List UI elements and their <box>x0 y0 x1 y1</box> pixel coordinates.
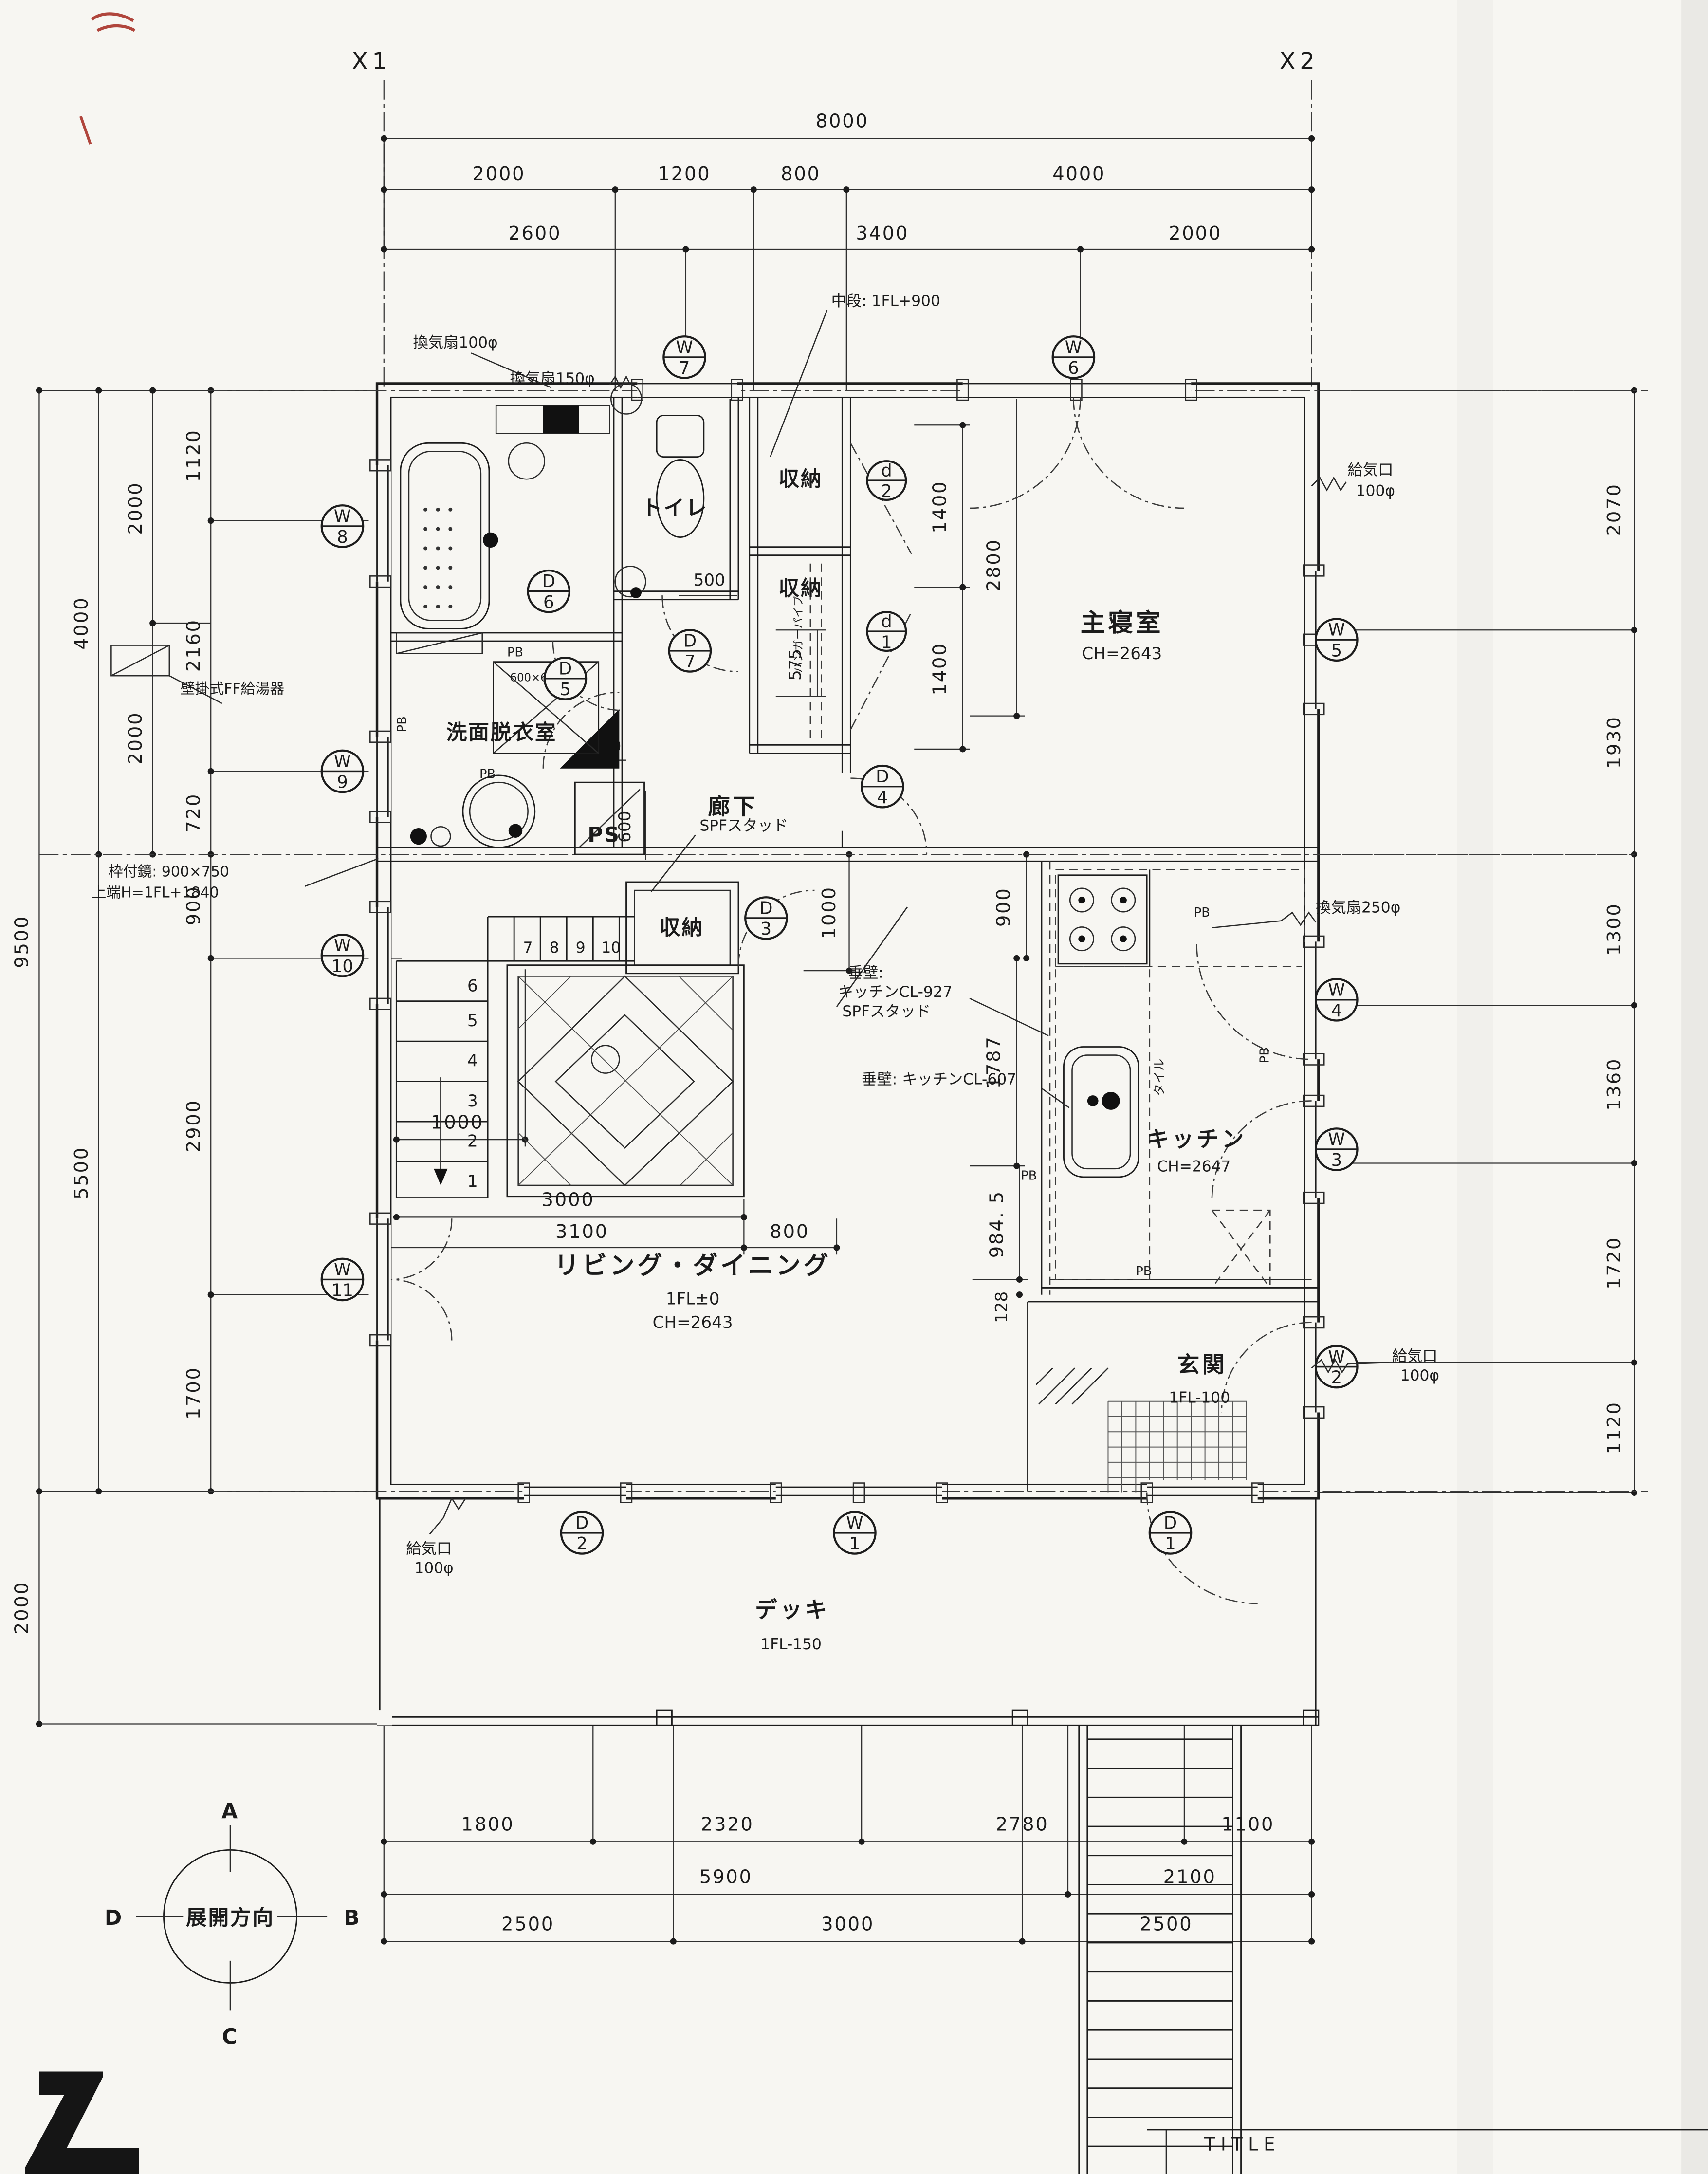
note-supply-air-2a: 給気口 <box>1392 1347 1438 1365</box>
note-mirror-height: 上端H=1FL+1840 <box>92 884 219 901</box>
bathtub-texture <box>423 508 452 608</box>
marker-w5: W5 <box>1316 619 1357 661</box>
svg-text:W: W <box>1328 1347 1345 1367</box>
svg-text:6: 6 <box>543 592 554 612</box>
svg-text:1: 1 <box>849 1534 861 1554</box>
window-w10-symbol <box>368 902 391 1010</box>
note-supply-air-1a: 給気口 <box>1348 461 1394 479</box>
svg-text:5: 5 <box>560 680 571 700</box>
compass-b: B <box>344 1906 361 1930</box>
dim-1400b: 1400 <box>929 642 951 695</box>
svg-text:D: D <box>559 659 572 679</box>
note-pb-5: PB <box>1257 1047 1272 1063</box>
svg-text:3: 3 <box>1331 1150 1342 1170</box>
stair-num-2: 2 <box>467 1131 478 1151</box>
entry-step-mark <box>1212 1210 1270 1288</box>
svg-text:W: W <box>676 337 693 357</box>
dim-2000b: 2000 <box>1169 222 1222 244</box>
dim-4000l: 4000 <box>71 597 92 650</box>
marker-w3: W3 <box>1316 1128 1357 1170</box>
room-closet-3: 収納 <box>660 916 704 940</box>
svg-text:W: W <box>846 1513 863 1533</box>
svg-text:2: 2 <box>881 481 892 501</box>
marker-d4: D4 <box>862 766 903 808</box>
dim-2160: 2160 <box>183 619 204 672</box>
bath-drain <box>509 443 545 479</box>
grid-label-x2: X2 <box>1280 48 1319 75</box>
note-pb-6: PB <box>1021 1169 1037 1183</box>
stair-num-4: 4 <box>467 1051 478 1070</box>
title-block: TITLE <box>1147 2130 1708 2174</box>
dim-1120r: 1120 <box>1603 1401 1625 1454</box>
dim-1930: 1930 <box>1603 716 1625 769</box>
note-vent250: 換気扇250φ <box>1316 899 1400 917</box>
window-w8-symbol <box>368 460 391 587</box>
window-w9-symbol <box>368 731 391 823</box>
svg-text:W: W <box>1328 980 1345 1000</box>
marker-w7: W7 <box>663 336 705 378</box>
marker-d6: D6 <box>528 571 569 612</box>
note-supply-air-2b: 100φ <box>1400 1367 1439 1384</box>
grid-label-x1: X1 <box>352 48 391 75</box>
note-midshelf: 中段: 1FL+900 <box>831 293 940 310</box>
dim-1000h: 1000 <box>818 886 840 939</box>
svg-text:W: W <box>1328 1129 1345 1149</box>
dim-3100: 3100 <box>555 1221 608 1243</box>
staircase: 6 5 4 3 2 1 7 8 9 10 <box>396 917 634 1198</box>
svg-text:W: W <box>334 752 351 772</box>
dim-4000t: 4000 <box>1052 163 1105 185</box>
room-living-fl: 1FL±0 <box>666 1290 720 1309</box>
note-pb-4: PB <box>1194 905 1210 920</box>
dim-2800: 2800 <box>983 538 1005 591</box>
dim-3000a: 3000 <box>542 1189 595 1211</box>
dim-2000a: 2000 <box>472 163 525 185</box>
dim-2600: 2600 <box>508 222 561 244</box>
svg-text:9: 9 <box>337 773 348 792</box>
marker-w2: W2 <box>1316 1346 1357 1388</box>
floor-plan-drawing: X1 X2 8000 2000 1200 800 4000 2600 3400 … <box>0 0 1708 2174</box>
svg-text:W: W <box>334 506 351 526</box>
bathroom <box>401 405 619 768</box>
note-heater: 壁掛式FF給湯器 <box>181 681 285 698</box>
svg-text:2: 2 <box>576 1534 588 1554</box>
svg-text:d: d <box>881 612 892 632</box>
dimension-framework: X1 X2 8000 2000 1200 800 4000 2600 3400 … <box>11 48 1637 1944</box>
room-closet-1: 収納 <box>778 467 823 491</box>
bath-faucet <box>483 533 498 548</box>
dim-2000c: 2000 <box>125 481 147 534</box>
svg-text:d: d <box>881 461 892 481</box>
dim-984-5: 984. 5 <box>986 1190 1008 1258</box>
dim-1000s: 1000 <box>431 1111 484 1133</box>
note-tarekabe-607: 垂壁: キッチンCL-607 <box>862 1070 1016 1088</box>
vent-fan-symbol <box>611 384 642 414</box>
dim-1300: 1300 <box>1603 903 1625 956</box>
stair-num-10: 10 <box>601 939 621 957</box>
walls <box>39 384 1648 1498</box>
dim-3000b: 3000 <box>821 1913 874 1935</box>
note-spf-stud-2: SPFスタッド <box>842 1003 931 1020</box>
dim-800: 800 <box>781 163 821 185</box>
note-pb-2: PB <box>395 716 409 732</box>
room-toilet: トイレ <box>642 496 708 520</box>
dim-900k: 900 <box>993 887 1015 927</box>
direction-compass: A B C D 展開方向 <box>105 1799 361 2049</box>
svg-text:3: 3 <box>761 919 772 939</box>
hearth <box>507 965 744 1197</box>
room-entry: 玄関 <box>1177 1352 1227 1378</box>
corner-mark <box>25 2072 139 2174</box>
svg-text:4: 4 <box>877 788 888 808</box>
dim-1120: 1120 <box>183 429 204 482</box>
room-living: リビング・ダイニング <box>554 1251 831 1280</box>
window-w11-symbol <box>368 1213 391 1346</box>
svg-text:D: D <box>575 1513 588 1533</box>
room-deck-fl: 1FL-150 <box>760 1636 822 1653</box>
door-d1-symbol <box>1141 1480 1263 1503</box>
svg-text:1: 1 <box>1165 1534 1176 1554</box>
note-pb-1: PB <box>507 645 523 660</box>
marker-d2-small: d2 <box>867 461 906 502</box>
window-w1-symbol <box>770 1480 947 1503</box>
dim-1100: 1100 <box>1221 1814 1274 1836</box>
floor-plan-page: X1 X2 8000 2000 1200 800 4000 2600 3400 … <box>0 0 1708 2174</box>
svg-text:D: D <box>876 767 889 787</box>
dim-1800: 1800 <box>461 1814 514 1836</box>
compass-d: D <box>105 1906 123 1930</box>
stair-num-3: 3 <box>467 1091 478 1111</box>
compass-label: 展開方向 <box>186 1906 275 1930</box>
dim-1700: 1700 <box>183 1366 204 1419</box>
note-pb-3: PB <box>479 767 496 782</box>
svg-text:D: D <box>1164 1513 1177 1533</box>
marker-d5: D5 <box>545 658 586 700</box>
entrance <box>1036 1210 1270 1492</box>
svg-text:10: 10 <box>331 957 353 976</box>
bathtub <box>401 443 489 628</box>
room-master-ch: CH=2643 <box>1082 644 1162 663</box>
marker-d1-small: d1 <box>867 612 906 653</box>
note-mirror-size: 枠付鏡: 900×750 <box>109 864 229 881</box>
window-w7-symbol <box>632 377 743 400</box>
svg-text:8: 8 <box>337 527 348 547</box>
dim-2070: 2070 <box>1603 483 1625 536</box>
svg-text:5: 5 <box>1331 641 1342 661</box>
stair-num-8: 8 <box>550 939 559 957</box>
dimension-ticks <box>36 135 1637 1945</box>
svg-text:D: D <box>683 631 697 651</box>
kitchen-sink <box>1064 1047 1139 1177</box>
note-tarekabe-927-a: 垂壁: <box>848 964 883 981</box>
note-spf-stud-1: SPFスタッド <box>699 817 788 835</box>
dim-2500a: 2500 <box>501 1913 554 1935</box>
room-living-ch: CH=2643 <box>653 1313 733 1332</box>
svg-text:4: 4 <box>1331 1001 1342 1021</box>
scan-mark <box>81 116 91 144</box>
svg-text:D: D <box>759 898 772 918</box>
dim-1360: 1360 <box>1603 1058 1625 1111</box>
window-w6-symbol <box>957 377 1196 400</box>
dim-2320: 2320 <box>701 1814 754 1836</box>
marker-d2: D2 <box>561 1512 603 1554</box>
svg-text:W: W <box>1328 620 1345 640</box>
dim-1200: 1200 <box>658 163 711 185</box>
dim-2000-deck: 2000 <box>11 1581 33 1634</box>
note-vent150: 換気扇150φ <box>510 370 595 387</box>
room-wash: 洗面脱衣室 <box>446 720 557 745</box>
entry-hatch <box>1036 1368 1108 1404</box>
door-d2-symbol <box>518 1480 632 1503</box>
marker-w11: W11 <box>322 1259 363 1301</box>
dim-5500: 5500 <box>71 1146 92 1199</box>
svg-text:W: W <box>334 936 351 956</box>
scan-mark <box>92 14 135 30</box>
stair-num-5: 5 <box>467 1011 478 1031</box>
washing-machine <box>463 775 535 847</box>
svg-text:1: 1 <box>881 632 892 652</box>
bath-step <box>560 709 619 768</box>
svg-text:W: W <box>1065 337 1082 357</box>
dim-3400: 3400 <box>856 222 909 244</box>
marker-d1: D1 <box>1150 1512 1191 1554</box>
external-stair <box>1079 1725 1241 2174</box>
room-entry-fl: 1FL-100 <box>1169 1389 1230 1407</box>
note-tarekabe-927-b: キッチンCL-927 <box>838 983 953 1001</box>
room-ps: PS <box>588 823 621 847</box>
compass-a: A <box>221 1799 239 1824</box>
dim-800b: 800 <box>770 1221 809 1243</box>
dim-2900: 2900 <box>183 1099 204 1152</box>
dim-9500: 9500 <box>11 915 33 968</box>
dim-720: 720 <box>183 793 204 833</box>
svg-text:6: 6 <box>1068 358 1079 378</box>
svg-text:W: W <box>334 1260 351 1280</box>
note-hanger-pipe: ハンガーパイプ <box>792 595 805 673</box>
dim-500: 500 <box>694 571 725 590</box>
toilet-tank <box>657 415 704 457</box>
kitchen-fixtures <box>1055 869 1304 1279</box>
stair-num-7: 7 <box>523 939 533 957</box>
note-tile: タイル <box>1152 1059 1167 1096</box>
svg-text:7: 7 <box>679 358 690 378</box>
room-master: 主寝室 <box>1081 608 1164 638</box>
note-pb-7: PB <box>1136 1264 1152 1279</box>
dim-128: 128 <box>992 1291 1011 1323</box>
dim-5900: 5900 <box>699 1866 753 1888</box>
compass-c: C <box>222 2025 239 2049</box>
dim-8000: 8000 <box>816 111 869 132</box>
dim-1720: 1720 <box>1603 1236 1625 1290</box>
note-vent100: 換気扇100φ <box>413 334 497 351</box>
room-kitchen-ch: CH=2647 <box>1157 1158 1230 1176</box>
svg-text:2: 2 <box>1331 1368 1342 1388</box>
stair-num-9: 9 <box>576 939 586 957</box>
stair-num-6: 6 <box>467 976 478 996</box>
note-supply-air-1b: 100φ <box>1356 482 1395 499</box>
room-deck: デッキ <box>755 1597 830 1622</box>
room-kitchen: キッチン <box>1147 1126 1247 1152</box>
openings <box>368 377 1324 1503</box>
marker-w4: W4 <box>1316 979 1357 1021</box>
marker-w9: W9 <box>322 751 363 792</box>
entry-tile-grid <box>1108 1401 1246 1493</box>
stair-arrow <box>434 1169 447 1185</box>
room-hall: 廊下 <box>708 794 757 820</box>
marker-d3: D3 <box>745 897 787 939</box>
dim-2500b: 2500 <box>1139 1913 1193 1935</box>
stair-num-1: 1 <box>467 1172 478 1191</box>
svg-text:11: 11 <box>331 1281 353 1301</box>
marker-w6: W6 <box>1053 336 1094 378</box>
marker-w1: W1 <box>834 1512 875 1554</box>
stove <box>1058 875 1147 964</box>
marker-w10: W10 <box>322 935 363 976</box>
note-supply-air-3b: 100φ <box>414 1559 453 1577</box>
title-label: TITLE <box>1204 2134 1281 2155</box>
marker-d7: D7 <box>669 630 711 672</box>
dim-1400a: 1400 <box>929 480 951 534</box>
dim-2000d: 2000 <box>125 712 147 765</box>
note-supply-air-3a: 給気口 <box>406 1540 452 1558</box>
svg-text:7: 7 <box>684 652 696 672</box>
marker-w8: W8 <box>322 505 363 547</box>
svg-text:D: D <box>542 571 555 591</box>
drain-dot <box>410 828 427 845</box>
